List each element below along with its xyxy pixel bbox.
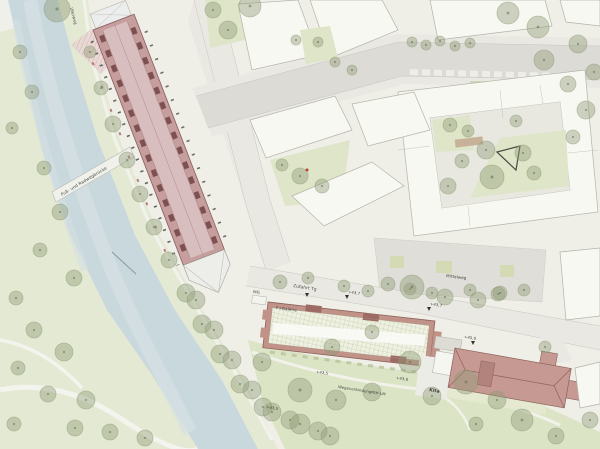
tree-trunk — [261, 361, 263, 363]
tree-trunk — [89, 51, 91, 53]
tree-trunk — [299, 175, 301, 177]
tree-trunk — [249, 5, 252, 8]
courtyard-block — [398, 70, 598, 236]
tree-trunk — [317, 430, 319, 432]
tree-trunk — [329, 435, 331, 437]
tree-trunk — [126, 159, 128, 161]
tree-trunk — [507, 12, 510, 15]
tree-trunk — [15, 297, 17, 299]
tree-trunk — [491, 176, 494, 179]
tree-trunk — [371, 331, 373, 333]
tree-trunk — [454, 45, 456, 47]
tree-trunk — [307, 277, 309, 279]
tree-trunk — [43, 167, 45, 169]
shelter — [252, 295, 267, 305]
tree-trunk — [351, 69, 353, 71]
tree-trunk — [281, 164, 283, 166]
tree-trunk — [477, 299, 479, 301]
tree-trunk — [33, 329, 35, 331]
tree-trunk — [555, 435, 557, 437]
tree-trunk — [467, 130, 469, 132]
tree-trunk — [13, 423, 15, 425]
plaza-green-3 — [500, 265, 514, 277]
site-plan: Fuß- und Radwegbrücke Uferweg — [0, 0, 600, 449]
tree-trunk — [47, 393, 49, 395]
tree-trunk — [100, 87, 102, 89]
tree-trunk — [153, 226, 155, 228]
plaza-green-1 — [390, 256, 404, 268]
block-4 — [560, 0, 600, 26]
tree-trunk — [59, 211, 61, 213]
tree-trunk — [444, 296, 446, 298]
tree-trunk — [411, 41, 413, 43]
tree-trunk — [299, 423, 301, 425]
tree-trunk — [144, 437, 146, 439]
plaza-green-2 — [436, 261, 452, 273]
tree-trunk — [279, 281, 281, 283]
tree-trunk — [231, 359, 233, 361]
tree-trunk — [299, 389, 302, 392]
tree-trunk — [567, 83, 569, 85]
tree-trunk — [39, 249, 41, 251]
tree-trunk — [485, 149, 487, 151]
tree-trunk — [522, 152, 524, 154]
tree-trunk — [317, 41, 319, 43]
tree-trunk — [543, 59, 545, 61]
kita-north-wing — [540, 351, 558, 366]
tree-trunk — [73, 277, 75, 279]
tree-trunk — [577, 43, 579, 45]
tree-trunk — [343, 285, 345, 287]
tree-trunk — [31, 91, 33, 93]
tree-trunk — [109, 431, 111, 433]
tree-trunk — [168, 259, 170, 261]
tree-trunk — [212, 9, 214, 11]
tree-trunk — [523, 289, 525, 291]
tree-trunk — [431, 395, 433, 397]
tree-trunk — [251, 389, 253, 391]
tree-trunk — [469, 42, 471, 44]
tree-trunk — [17, 367, 19, 369]
tree-trunk — [213, 329, 215, 331]
tree-trunk — [447, 185, 449, 187]
tree-trunk — [331, 346, 333, 348]
tree-trunk — [593, 71, 595, 73]
tree — [44, 0, 70, 22]
tree-trunk — [589, 419, 591, 421]
block-east-1 — [560, 248, 600, 320]
tree-trunk — [185, 292, 187, 294]
site-plan-canvas: Fuß- und Radwegbrücke Uferweg — [0, 0, 600, 449]
tree-trunk — [239, 383, 241, 385]
tree-trunk — [195, 299, 197, 301]
tree-trunk — [334, 61, 336, 63]
mg-label: MG — [253, 289, 260, 295]
tree-trunk — [11, 127, 13, 129]
tree-trunk — [335, 399, 337, 401]
tree-trunk — [431, 292, 433, 294]
tree-trunk — [465, 381, 468, 384]
tree-trunk — [411, 286, 414, 289]
tree-trunk — [387, 283, 389, 285]
tree-trunk — [439, 40, 441, 42]
tree-trunk — [585, 109, 587, 111]
tree-trunk — [19, 51, 21, 53]
tree-trunk — [271, 411, 273, 413]
tree-trunk — [409, 361, 412, 364]
tree-trunk — [544, 346, 546, 348]
tree-trunk — [139, 193, 141, 195]
tree-trunk — [425, 44, 427, 46]
tree-trunk — [112, 123, 114, 125]
tree-trunk — [572, 136, 574, 138]
tree-trunk — [461, 160, 463, 162]
tree-trunk — [449, 124, 451, 126]
tree-trunk — [55, 7, 58, 10]
tree-trunk — [499, 292, 501, 294]
tree-trunk — [219, 353, 221, 355]
tree-trunk — [515, 120, 517, 122]
tree-trunk — [201, 323, 203, 325]
tree-trunk — [537, 26, 540, 29]
tree-trunk — [63, 351, 65, 353]
tree-trunk — [496, 399, 498, 401]
tree-trunk — [521, 419, 524, 422]
tree-trunk — [74, 427, 76, 429]
tree-trunk — [533, 172, 535, 174]
tree-trunk — [321, 185, 323, 187]
tree-trunk — [367, 290, 369, 292]
tree-trunk — [469, 289, 471, 291]
tree-trunk — [295, 39, 297, 41]
tree-trunk — [475, 423, 477, 425]
tree-trunk — [85, 399, 87, 401]
tree-trunk — [227, 29, 229, 31]
